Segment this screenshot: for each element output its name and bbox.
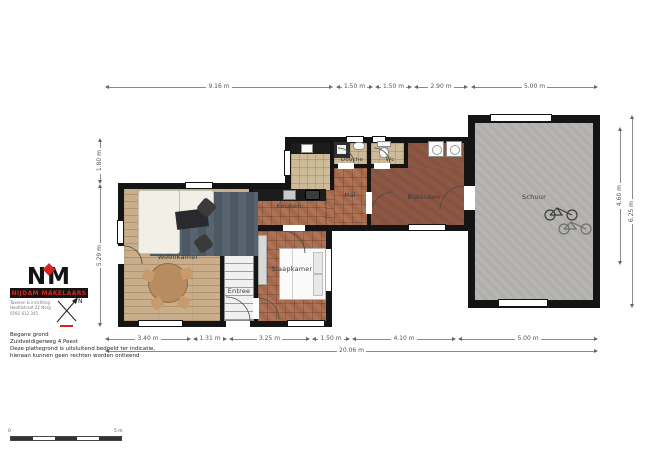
i [99, 437, 121, 440]
span: 1.31 m [197, 336, 222, 342]
span: 5.00 m [515, 336, 540, 342]
dim-bottom-4: 1.50 m [312, 336, 350, 342]
span: 20.06 m [337, 348, 366, 354]
ln [356, 339, 391, 340]
a [452, 337, 456, 341]
a [594, 337, 598, 341]
g [124, 148, 464, 321]
span: 9.16 m [206, 84, 231, 90]
ln [100, 268, 101, 323]
ln [632, 224, 633, 304]
scalebar-zero-label: 0 [8, 429, 11, 434]
a [630, 304, 634, 308]
label-schuur: Schuur [522, 193, 546, 201]
i [55, 437, 77, 440]
a [98, 323, 102, 327]
ln [366, 351, 594, 352]
i [77, 437, 99, 440]
label-wc: Wc [386, 157, 395, 163]
span: 5.29 m [97, 243, 103, 268]
ln [282, 339, 306, 340]
a [408, 85, 412, 89]
dim-bottom-2: 1.31 m [193, 336, 227, 342]
footer-text-block: Begane grond Zuidveldigerweg 4 Peest Dez… [10, 332, 155, 361]
a [187, 337, 191, 341]
ln [100, 188, 101, 243]
path [258, 298, 279, 319]
a [306, 337, 310, 341]
ln [475, 87, 522, 88]
compass-north-label: N [78, 298, 83, 305]
a [464, 85, 468, 89]
span: 1.50 m [342, 84, 367, 90]
logo-monogram: NM [10, 266, 88, 288]
a [329, 85, 333, 89]
floorplan-page: Woonkamer Keuken Slaapkamer Entree Hal D… [0, 0, 650, 460]
span: 1.80 m [97, 148, 103, 173]
path [124, 246, 142, 264]
label-hal: Hal [344, 191, 355, 199]
ln [632, 119, 633, 199]
span: 1.50 m [381, 84, 406, 90]
footer-disclaimer-2: hieraan kunnen geen rechten worden ontle… [10, 353, 155, 360]
span: 4.10 m [391, 336, 416, 342]
path [226, 297, 250, 321]
a [223, 337, 227, 341]
path [371, 192, 393, 214]
dim-right-1: 4.60 m [616, 127, 624, 265]
scale-bar [10, 436, 122, 441]
i [11, 437, 33, 440]
path [283, 231, 305, 253]
path [440, 186, 464, 210]
i [33, 437, 55, 440]
scalebar-five-label: 5 m [114, 429, 123, 434]
ln [462, 339, 515, 340]
a [346, 337, 350, 341]
a [369, 85, 373, 89]
ln [233, 339, 257, 340]
dim-top-4: 2.90 m [414, 84, 468, 90]
a [618, 261, 622, 265]
a [594, 85, 598, 89]
label-slaapkamer: Slaapkamer [272, 265, 313, 273]
ln [547, 87, 594, 88]
span: 4.60 m [617, 183, 623, 208]
ln [620, 209, 621, 261]
ln [418, 87, 428, 88]
dim-left-1: 1.80 m [96, 138, 104, 184]
dim-top-2: 1.50 m [336, 84, 373, 90]
g [121, 166, 471, 324]
footer-disclaimer-1: Deze plattegrond is uitsluitend bedoeld … [10, 346, 155, 353]
span: 6.25 m [629, 199, 635, 224]
dim-top-1: 9.16 m [105, 84, 333, 90]
dim-bottom-6: 5.00 m [458, 336, 598, 342]
dim-top-3: 1.50 m [375, 84, 412, 90]
ln [620, 131, 621, 183]
ln [417, 339, 452, 340]
footer-floor-name: Begane grond [10, 332, 155, 339]
ln [232, 87, 329, 88]
label-bijkeuken: Bijkeuken [407, 193, 440, 201]
ln [109, 87, 206, 88]
ln [161, 339, 187, 340]
label-keuken: Keuken [277, 202, 302, 210]
footer-address: Zuidveldigerweg 4 Peest [10, 339, 155, 346]
dim-bottom-total: 20.06 m [105, 348, 598, 354]
dim-bottom-5: 4.10 m [352, 336, 456, 342]
ln [541, 339, 594, 340]
dim-left-2: 5.29 m [96, 184, 104, 327]
compass-icon: N [52, 294, 84, 330]
ln [454, 87, 464, 88]
span: 1.50 m [318, 336, 343, 342]
span: 3.25 m [257, 336, 282, 342]
label-entree: Entree [228, 287, 251, 295]
dim-right-2: 6.25 m [628, 115, 636, 308]
span: 5.00 m [522, 84, 547, 90]
dim-top-5: 5.00 m [471, 84, 598, 90]
rect [60, 325, 73, 327]
label-douche: Douche [341, 157, 363, 163]
a [594, 349, 598, 353]
span: 2.90 m [428, 84, 453, 90]
dim-bottom-3: 3.25 m [229, 336, 310, 342]
label-woonkamer: Woonkamer [158, 253, 199, 261]
